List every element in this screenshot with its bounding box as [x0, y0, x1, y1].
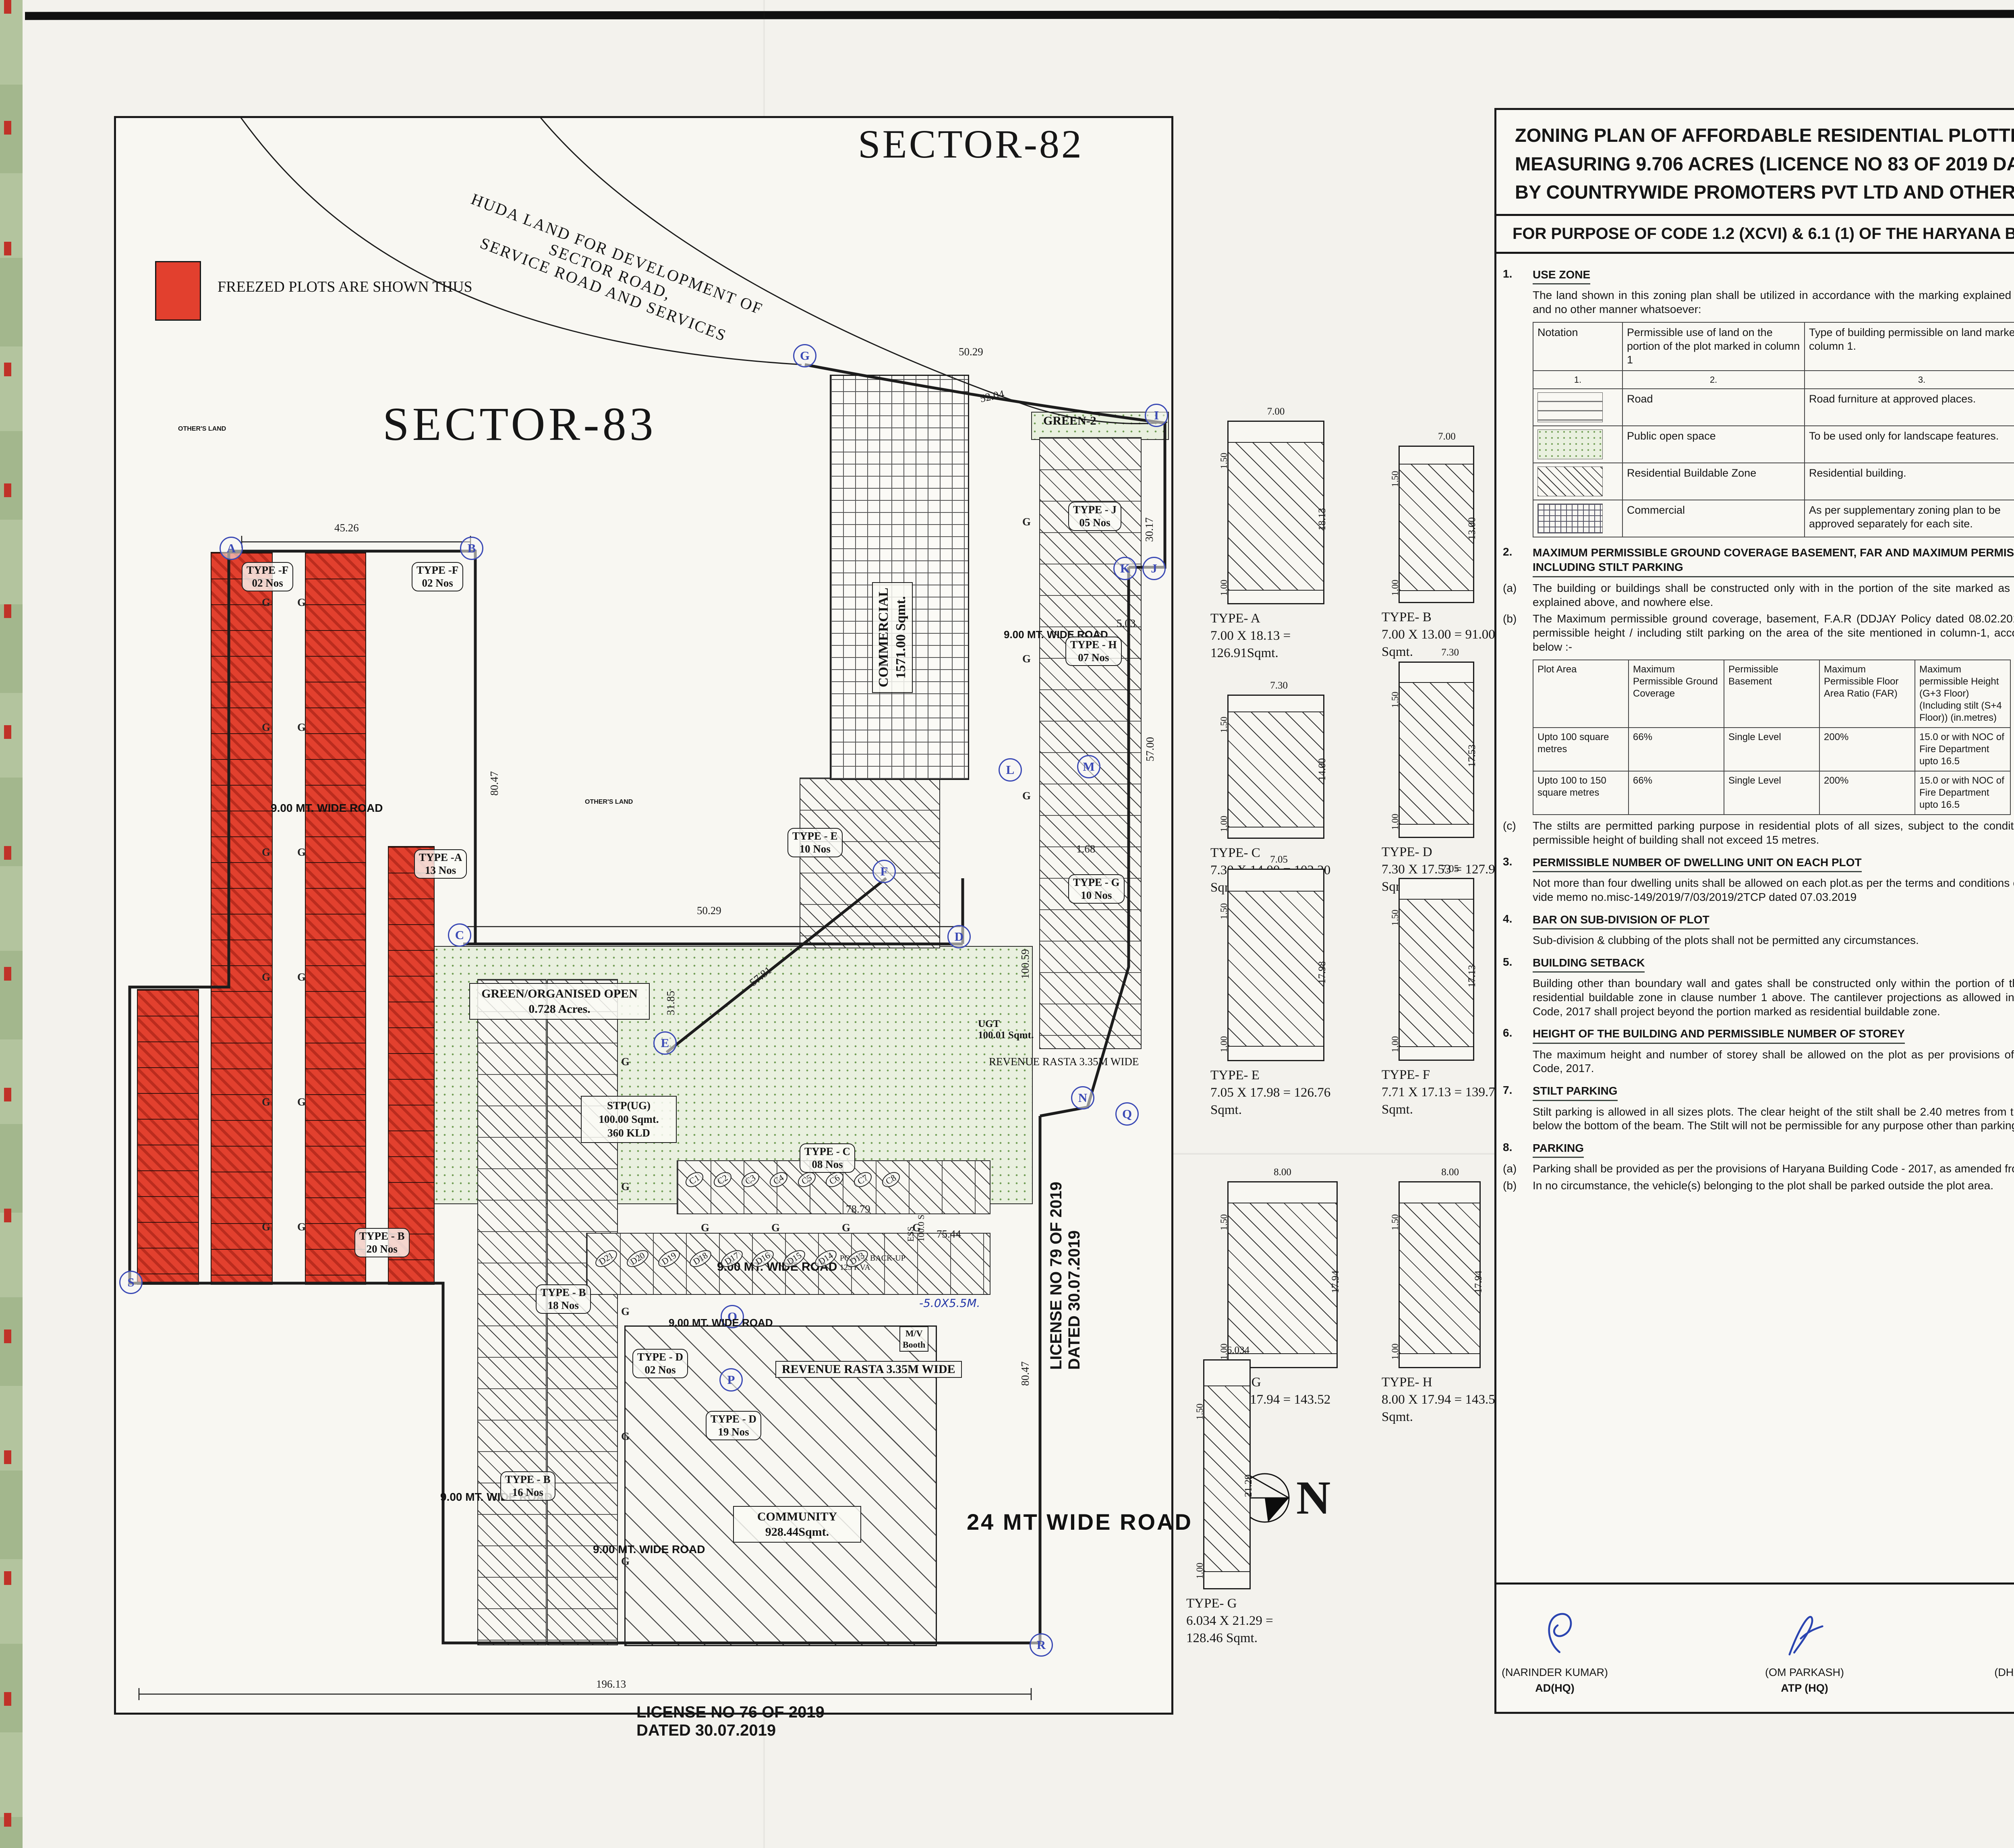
- plot-type-caption: TYPE- A7.00 X 18.13 =126.91Sqmt.: [1210, 610, 1324, 662]
- boundary-marker: E: [653, 1031, 677, 1055]
- freezed-plot-column: [211, 552, 273, 1285]
- gate-mark: G: [262, 1221, 270, 1233]
- plot-height-dim: 21.29: [1243, 1475, 1254, 1497]
- plot-height-dim: 17.13: [1467, 965, 1478, 987]
- section-heading: 2.MAXIMUM PERMISSIBLE GROUND COVERAGE BA…: [1503, 545, 2014, 577]
- boundary-marker: C: [448, 923, 471, 947]
- use-zone-row: Commercial As per supplementary zoning p…: [1533, 500, 2014, 537]
- plot-outline: 17.94 1.50 1.00: [1227, 1181, 1338, 1368]
- plot-type-diagram: 7.05 17.13 1.50 1.00 TYPE- F7.71 X 17.13…: [1378, 860, 1502, 1118]
- gate-mark: G: [912, 1222, 921, 1234]
- far-table-cell: 200%: [1819, 771, 1915, 815]
- road-label: 9.00 MT. WIDE ROAD: [271, 802, 383, 815]
- caption-line: 128.46 Sqmt.: [1186, 1630, 1273, 1647]
- use-zone-row: Road Road furniture at approved places.: [1533, 389, 2014, 426]
- plot-type-diagram: 7.00 13.00 1.50 1.00 TYPE- B7.00 X 13.00…: [1378, 428, 1495, 661]
- caption-line: 8.00 X 17.94 = 143.52: [1382, 1391, 1502, 1408]
- notes-section: 8.PARKING (a)Parking shall be provided a…: [1503, 1141, 2014, 1193]
- plot-group-label: TYPE - B16 Nos: [500, 1471, 555, 1501]
- plot-height-dim: 18.13: [1317, 508, 1328, 531]
- far-table-cell: Upto 100 to 150 square metres: [1533, 771, 1629, 815]
- notation-swatch: [1537, 467, 1603, 496]
- title-line: ZONING PLAN OF AFFORDABLE RESIDENTIAL PL…: [1515, 121, 2014, 150]
- plot-outline: 21.29 1.50 1.00: [1203, 1359, 1251, 1589]
- section-paragraph: Not more than four dwelling units shall …: [1503, 876, 2014, 904]
- caption-line: TYPE- A: [1210, 610, 1324, 627]
- boundary-marker: F: [872, 860, 896, 883]
- signature-block: (NARINDER KUMAR) AD(HQ): [1470, 1607, 1639, 1695]
- notation-swatch: [1537, 392, 1603, 422]
- plot-outline: 13.00 1.50 1.00: [1399, 446, 1474, 603]
- boundary-marker: S: [119, 1271, 143, 1294]
- far-table-header: Maximum permissible Height (G+3 Floor) (…: [1915, 660, 2010, 728]
- notes-section: 7.STILT PARKING Stilt parking is allowed…: [1503, 1084, 2014, 1133]
- gate-mark: G: [771, 1222, 780, 1234]
- far-table-row: Upto 100 square metres66%Single Level200…: [1533, 728, 2010, 771]
- buildable-zone-hatch: [1229, 1203, 1336, 1354]
- plot-group-label: TYPE - C08 Nos: [800, 1143, 855, 1173]
- gate-mark: G: [621, 1555, 630, 1568]
- far-table-header: Permissible Basement: [1724, 660, 1819, 728]
- far-table-header: Maximum Permissible Ground Coverage: [1629, 660, 1724, 728]
- boundary-marker: Q: [1115, 1102, 1139, 1126]
- feature-line: UGT: [978, 1018, 1034, 1030]
- map-feature-label: UGT100.01 Sqmt.: [978, 1018, 1034, 1041]
- signature-divider: [1494, 1583, 2014, 1585]
- dimension-label: 30.17: [1143, 517, 1156, 542]
- title-line: MEASURING 9.706 ACRES (LICENCE NO 83 OF …: [1515, 150, 2014, 178]
- plot-width-dim: 8.00: [1399, 1167, 1502, 1178]
- license-line: LICENSE NO 76 OF 2019: [636, 1703, 825, 1721]
- plot-width-dim: 8.00: [1227, 1167, 1338, 1178]
- signature-mark: [1529, 1607, 1581, 1664]
- front-setback-dim: 1.50: [1219, 903, 1229, 919]
- map-feature-label: GREEN-2: [1043, 414, 1096, 428]
- section-heading: 1.USE ZONE: [1503, 268, 2014, 284]
- feature-line: 100.01 Sqmt.: [978, 1030, 1034, 1041]
- road-label: 9.00 MT. WIDE ROAD: [593, 1543, 705, 1556]
- caption-line: 7.00 X 13.00 = 91.00: [1382, 626, 1495, 643]
- rear-setback-dim: 1.00: [1390, 579, 1401, 595]
- map-feature-label: STP(UG)100.00 Sqmt.360 KLD: [581, 1096, 677, 1143]
- gate-mark: G: [621, 1056, 630, 1068]
- far-table-cell: 200%: [1819, 728, 1915, 771]
- signatory-title: ATP (HQ): [1720, 1682, 1889, 1695]
- plot-column: [800, 778, 940, 948]
- license-line: DATED 30.07.2019: [636, 1721, 825, 1740]
- notation-swatch: [1537, 504, 1603, 533]
- dimension-label: 196.13: [596, 1678, 626, 1690]
- gate-mark: G: [1022, 790, 1031, 802]
- boundary-marker: N: [1071, 1086, 1094, 1110]
- notation-swatch: [1537, 429, 1603, 459]
- gate-mark: G: [297, 1096, 306, 1108]
- plot-type-diagram: 7.00 18.13 1.50 1.00 TYPE- A7.00 X 18.13…: [1206, 403, 1324, 662]
- caption-line: 6.034 X 21.29 =: [1186, 1612, 1273, 1630]
- gate-mark: G: [842, 1222, 850, 1234]
- map-feature-label: M/VBooth: [899, 1326, 928, 1352]
- dimension-label: 31.85: [665, 991, 677, 1015]
- section-heading: 7.STILT PARKING: [1503, 1084, 2014, 1101]
- feature-line: GREEN-2: [1043, 414, 1096, 428]
- dimension-label: 78.79: [846, 1203, 870, 1215]
- front-setback-dim: 1.50: [1390, 1214, 1401, 1230]
- buildable-zone-hatch: [1400, 899, 1473, 1047]
- caption-line: TYPE- D: [1382, 844, 1502, 861]
- use-zone-row: Residential Buildable Zone Residential b…: [1533, 463, 2014, 500]
- boundary-marker: B: [460, 537, 483, 560]
- section-paragraph: (b)In no circumstance, the vehicle(s) be…: [1503, 1179, 2014, 1193]
- boundary-marker: D: [947, 925, 971, 948]
- section-paragraph: Sub-division & clubbing of the plots sha…: [1503, 933, 2014, 948]
- section-paragraph: Stilt parking is allowed in all sizes pl…: [1503, 1105, 2014, 1133]
- signatory-title: AD(HQ): [1470, 1682, 1639, 1695]
- freezed-plots-legend-swatch: [155, 261, 201, 321]
- plot-type-diagram: 7.05 17.98 1.50 1.00 TYPE- E7.05 X 17.98…: [1206, 851, 1330, 1119]
- license-note: LICENSE NO 76 OF 2019DATED 30.07.2019: [636, 1703, 825, 1740]
- title-line: BY COUNTRYWIDE PROMOTERS PVT LTD AND OTH…: [1515, 178, 2014, 207]
- road-label: 24 MT WIDE ROAD: [967, 1509, 1193, 1535]
- gate-mark: G: [262, 971, 270, 983]
- caption-line: TYPE- B: [1382, 609, 1495, 626]
- plot-outline: 17.53 1.50 1.00: [1399, 662, 1474, 838]
- boundary-marker: L: [999, 758, 1022, 782]
- freezed-plots-legend-label: FREEZED PLOTS ARE SHOWN THUS: [218, 278, 472, 296]
- plot-type-diagram: 6.034 21.29 1.50 1.00 TYPE- G6.034 X 21.…: [1182, 1342, 1273, 1647]
- rear-setback-dim: 1.00: [1219, 1036, 1229, 1052]
- road-label: REVENUE RASTA 3.35M WIDE: [989, 1056, 1139, 1068]
- front-setback-dim: 1.50: [1390, 471, 1401, 487]
- far-table-header: Maximum Permissible Floor Area Ratio (FA…: [1819, 660, 1915, 728]
- boundary-marker: K: [1113, 557, 1137, 580]
- feature-line: Booth: [903, 1339, 925, 1350]
- plot-width-dim: 7.00: [1227, 406, 1324, 417]
- caption-line: TYPE- H: [1382, 1374, 1502, 1391]
- caption-line: TYPE- G: [1186, 1595, 1273, 1612]
- sector-83-label: SECTOR-83: [383, 397, 657, 452]
- dimension-label: 45.26: [334, 522, 359, 534]
- plot-type-diagram: 8.00 17.94 1.50 1.00 TYPE- H8.00 X 17.94…: [1378, 1164, 1502, 1426]
- gate-mark: G: [621, 1305, 630, 1318]
- buildable-zone-hatch: [1229, 891, 1323, 1047]
- plot-outline: 17.13 1.50 1.00: [1399, 878, 1474, 1061]
- plot-group-label: TYPE - J05 Nos: [1068, 502, 1121, 531]
- scanned-zoning-plan-document: SECTOR-82 SECTOR-83 HUDA LAND FOR DEVELO…: [0, 0, 2014, 1848]
- drawing-subtitle: FOR PURPOSE OF CODE 1.2 (XCVI) & 6.1 (1)…: [1496, 216, 2014, 254]
- plot-height-dim: 17.94: [1473, 1271, 1484, 1293]
- license-line: DATED 30.07.2019: [1065, 1182, 1084, 1370]
- gate-mark: G: [701, 1222, 709, 1234]
- plot-height-dim: 13.00: [1467, 517, 1478, 540]
- buildable-zone-hatch: [1400, 464, 1473, 591]
- plot-group-label: TYPE -A13 Nos: [414, 849, 467, 879]
- plot-outline: 18.13 1.50 1.00: [1227, 421, 1324, 604]
- feature-line: M/V: [903, 1328, 925, 1339]
- section-heading: 6.HEIGHT OF THE BUILDING AND PERMISSIBLE…: [1503, 1027, 2014, 1043]
- drawing-title: ZONING PLAN OF AFFORDABLE RESIDENTIAL PL…: [1496, 110, 2014, 216]
- commercial-area: [830, 375, 969, 780]
- rear-setback-dim: 1.00: [1390, 1036, 1401, 1052]
- plot-height-dim: 14.00: [1317, 758, 1328, 781]
- section-heading: 5.BUILDING SETBACK: [1503, 956, 2014, 973]
- buildable-zone-hatch: [1229, 711, 1323, 828]
- buildable-zone-hatch: [1229, 442, 1323, 591]
- plot-width-dim: 7.05: [1399, 863, 1502, 875]
- far-table-cell: Upto 100 square metres: [1533, 728, 1629, 771]
- gate-mark: G: [262, 596, 270, 609]
- plot-group-label: TYPE - B18 Nos: [536, 1284, 591, 1314]
- far-table-row: Upto 100 to 150 square metres66%Single L…: [1533, 771, 2010, 815]
- feature-line: GREEN/ORGANISED OPEN: [475, 986, 644, 1002]
- gate-mark: G: [297, 846, 306, 859]
- far-table-cell: 66%: [1629, 771, 1724, 815]
- front-setback-dim: 1.50: [1195, 1404, 1205, 1420]
- license-line: LICENSE NO 79 OF 2019: [1047, 1182, 1065, 1370]
- far-table-cell: Single Level: [1724, 728, 1819, 771]
- signatory-name: (NARINDER KUMAR): [1470, 1666, 1639, 1679]
- plot-group-label: TYPE - D19 Nos: [706, 1411, 761, 1440]
- section-heading: 8.PARKING: [1503, 1141, 2014, 1158]
- caption-line: 7.71 X 17.13 = 139.78: [1382, 1084, 1502, 1101]
- section-paragraph: (c)The stilts are permitted parking purp…: [1503, 819, 2014, 847]
- boundary-marker: P: [719, 1368, 743, 1392]
- plot-width-dim: 7.05: [1227, 854, 1330, 865]
- gate-mark: G: [621, 1430, 630, 1443]
- dimension-label: 57.00: [1144, 737, 1156, 761]
- front-setback-dim: 1.50: [1219, 453, 1229, 469]
- plot-type-caption: TYPE- F7.71 X 17.13 = 139.78Sqmt.: [1382, 1066, 1502, 1118]
- gate-mark: G: [1022, 516, 1031, 528]
- caption-line: 7.05 X 17.98 = 126.76: [1210, 1084, 1330, 1101]
- caption-line: TYPE- F: [1382, 1066, 1502, 1084]
- rear-setback-dim: 1.00: [1390, 813, 1401, 830]
- plot-group-label: TYPE -F02 Nos: [242, 562, 293, 591]
- plot-type-caption: TYPE- G6.034 X 21.29 =128.46 Sqmt.: [1186, 1595, 1273, 1647]
- freezed-plot-column: [137, 989, 199, 1285]
- gate-mark: G: [262, 721, 270, 734]
- section-paragraph: (a)The building or buildings shall be co…: [1503, 581, 2014, 609]
- plot-row-c-numbers: C1C2C3C4C5C6C7C8: [685, 1173, 901, 1186]
- section-paragraph: Building other than boundary wall and ga…: [1503, 977, 2014, 1018]
- section-paragraph: (a)Parking shall be provided as per the …: [1503, 1162, 2014, 1176]
- plot-outline: 17.98 1.50 1.00: [1227, 869, 1324, 1061]
- boundary-marker: A: [220, 537, 243, 560]
- section-heading: 3.PERMISSIBLE NUMBER OF DWELLING UNIT ON…: [1503, 855, 2014, 872]
- front-setback-dim: 1.50: [1219, 1214, 1229, 1230]
- scan-edge-strip: [0, 0, 23, 1848]
- notes-section: 4.BAR ON SUB-DIVISION OF PLOT Sub-divisi…: [1503, 913, 2014, 948]
- gate-mark: G: [1022, 653, 1031, 665]
- north-label: N: [1296, 1471, 1330, 1525]
- sector-82-label: SECTOR-82: [858, 121, 1084, 167]
- dimension-label: 100.59: [1019, 949, 1032, 979]
- section-paragraph: The land shown in this zoning plan shall…: [1533, 288, 2014, 316]
- rear-setback-dim: 1.00: [1390, 1343, 1401, 1359]
- rear-setback-dim: 1.00: [1195, 1563, 1205, 1579]
- signatory-name: (DHARAMVIR SINGH KHATRI): [1986, 1666, 2014, 1679]
- handwritten-note: -5.0X5.5M.: [919, 1296, 980, 1310]
- dimension-label: 80.47: [1019, 1361, 1032, 1386]
- use-zone-row: Public open space To be used only for la…: [1533, 426, 2014, 463]
- plot-group-label: TYPE - D02 Nos: [632, 1349, 688, 1378]
- plot-outline: 14.00 1.50 1.00: [1227, 695, 1324, 839]
- far-table-cell: Single Level: [1724, 771, 1819, 815]
- dimension-label: 1.68: [1076, 843, 1095, 855]
- signatory-name: (OM PARKASH): [1720, 1666, 1889, 1679]
- caption-line: Sqmt.: [1382, 1408, 1502, 1426]
- map-feature-label: GREEN/ORGANISED OPEN0.728 Acres.: [469, 983, 650, 1020]
- caption-line: TYPE- E: [1210, 1067, 1330, 1084]
- boundary-marker: R: [1030, 1633, 1053, 1657]
- plot-group-label: TYPE - E10 Nos: [787, 828, 843, 857]
- boundary-marker: J: [1142, 557, 1166, 580]
- scan-top-line: [25, 9, 2014, 20]
- rear-setback-dim: 1.00: [1219, 580, 1229, 596]
- boundary-marker: I: [1145, 404, 1168, 427]
- boundary-marker: M: [1077, 755, 1100, 778]
- dimension-label: 5.03: [1117, 617, 1135, 630]
- section-heading: 4.BAR ON SUB-DIVISION OF PLOT: [1503, 913, 2014, 929]
- far-table: Plot AreaMaximum Permissible Ground Cove…: [1533, 660, 2011, 815]
- gate-mark: G: [262, 1096, 270, 1108]
- others-land-label: OTHER'S LAND: [178, 425, 226, 433]
- gate-mark: G: [297, 596, 306, 609]
- plot-group-label: TYPE - G10 Nos: [1068, 874, 1125, 904]
- gate-mark: G: [262, 846, 270, 859]
- dimension-label: 50.29: [959, 346, 983, 358]
- plot-height-dim: 17.53: [1467, 745, 1478, 767]
- notes-left-column: 1.USE ZONE The land shown in this zoning…: [1496, 254, 2014, 1200]
- feature-line: STP(UG): [586, 1099, 671, 1113]
- dimension-label: 50.29: [697, 904, 721, 917]
- rear-setback-dim: 1.00: [1219, 816, 1229, 832]
- plot-type-diagram: 7.30 17.53 1.50 1.00 TYPE- D7.30 X 17.53…: [1378, 644, 1502, 896]
- road-label: 9.00 MT. WIDE ROAD: [669, 1317, 773, 1329]
- gate-mark: G: [297, 971, 306, 983]
- plot-type-caption: TYPE- H8.00 X 17.94 = 143.52Sqmt.: [1382, 1374, 1502, 1426]
- plot-width-dim: 7.30: [1399, 647, 1502, 658]
- map-feature-label: COMMUNITY928.44Sqmt.: [733, 1506, 861, 1543]
- notes-section: 3.PERMISSIBLE NUMBER OF DWELLING UNIT ON…: [1503, 855, 2014, 904]
- caption-line: 7.00 X 18.13 =: [1210, 627, 1324, 645]
- feature-line: 100.00 Sqmt.: [586, 1113, 671, 1126]
- feature-line: 928.44Sqmt.: [739, 1524, 856, 1540]
- signature-mark: [1778, 1607, 1831, 1664]
- far-table-cell: 15.0 or with NOC of Fire Department upto…: [1915, 771, 2010, 815]
- caption-line: 126.91Sqmt.: [1210, 645, 1324, 662]
- front-setback-dim: 1.50: [1390, 910, 1401, 926]
- use-zone-table: Notation Permissible use of land on the …: [1533, 322, 2014, 537]
- signatory-title: DTP(HQ): [1986, 1682, 2014, 1695]
- feature-line: COMMUNITY: [739, 1509, 856, 1524]
- commercial-label: COMMERCIAL1571.00 Sqmt.: [872, 582, 913, 693]
- freezed-plot-column: [305, 552, 366, 1285]
- signature-block: (DHARAMVIR SINGH KHATRI) DTP(HQ): [1986, 1607, 2014, 1695]
- front-setback-dim: 1.50: [1219, 716, 1229, 732]
- boundary-marker: G: [793, 344, 816, 367]
- plot-group-label: TYPE - H07 Nos: [1065, 637, 1122, 666]
- plot-width-dim: 7.30: [1227, 680, 1330, 691]
- notes-section: 5.BUILDING SETBACK Building other than b…: [1503, 956, 2014, 1019]
- road-label: REVENUE RASTA 3.35M WIDE: [775, 1361, 962, 1378]
- plot-type-caption: TYPE- E7.05 X 17.98 = 126.76Sqmt.: [1210, 1067, 1330, 1119]
- dimension-label: 80.47: [488, 771, 501, 796]
- feature-line: 360 KLD: [586, 1126, 671, 1140]
- far-table-header: Plot Area: [1533, 660, 1629, 728]
- caption-line: Sqmt.: [1210, 1101, 1330, 1119]
- buildable-zone-hatch: [1400, 682, 1473, 825]
- far-table-cell: 15.0 or with NOC of Fire Department upto…: [1915, 728, 2010, 771]
- plot-column: [477, 979, 547, 1645]
- plot-height-dim: 17.98: [1317, 961, 1328, 984]
- plot-width-dim: 6.034: [1203, 1345, 1273, 1356]
- signature-block: (OM PARKASH) ATP (HQ): [1720, 1607, 1889, 1695]
- license-note: LICENSE NO 79 OF 2019DATED 30.07.2019: [1047, 1182, 1084, 1370]
- buildable-zone-hatch: [1400, 1203, 1479, 1354]
- caption-line: Sqmt.: [1382, 1101, 1502, 1118]
- plot-group-label: TYPE - B20 Nos: [354, 1228, 410, 1257]
- section-paragraph: (b)The Maximum permissible ground covera…: [1503, 612, 2014, 654]
- plot-group-label: TYPE -F02 Nos: [412, 562, 463, 591]
- others-land-label: OTHER'S LAND: [585, 799, 633, 806]
- feature-line: 0.728 Acres.: [475, 1002, 644, 1017]
- gate-mark: G: [297, 721, 306, 734]
- far-table-cell: 66%: [1629, 728, 1724, 771]
- plot-height-dim: 17.94: [1330, 1271, 1341, 1293]
- plot-outline: 17.94 1.50 1.00: [1399, 1181, 1481, 1368]
- dimension-label: 75.44: [937, 1228, 961, 1240]
- plot-row-d-numbers: D21D20D19D18D17D16D15D14D13: [594, 1252, 869, 1265]
- zoning-notes-panel: ZONING PLAN OF AFFORDABLE RESIDENTIAL PL…: [1494, 108, 2014, 1714]
- plot-width-dim: 7.00: [1399, 431, 1495, 442]
- front-setback-dim: 1.50: [1390, 692, 1401, 708]
- section-paragraph: The maximum height and number of storey …: [1503, 1048, 2014, 1076]
- freezed-plot-column: [388, 846, 435, 1285]
- gate-mark: G: [621, 1180, 630, 1193]
- notes-section: 6.HEIGHT OF THE BUILDING AND PERMISSIBLE…: [1503, 1027, 2014, 1076]
- gate-mark: G: [297, 1221, 306, 1233]
